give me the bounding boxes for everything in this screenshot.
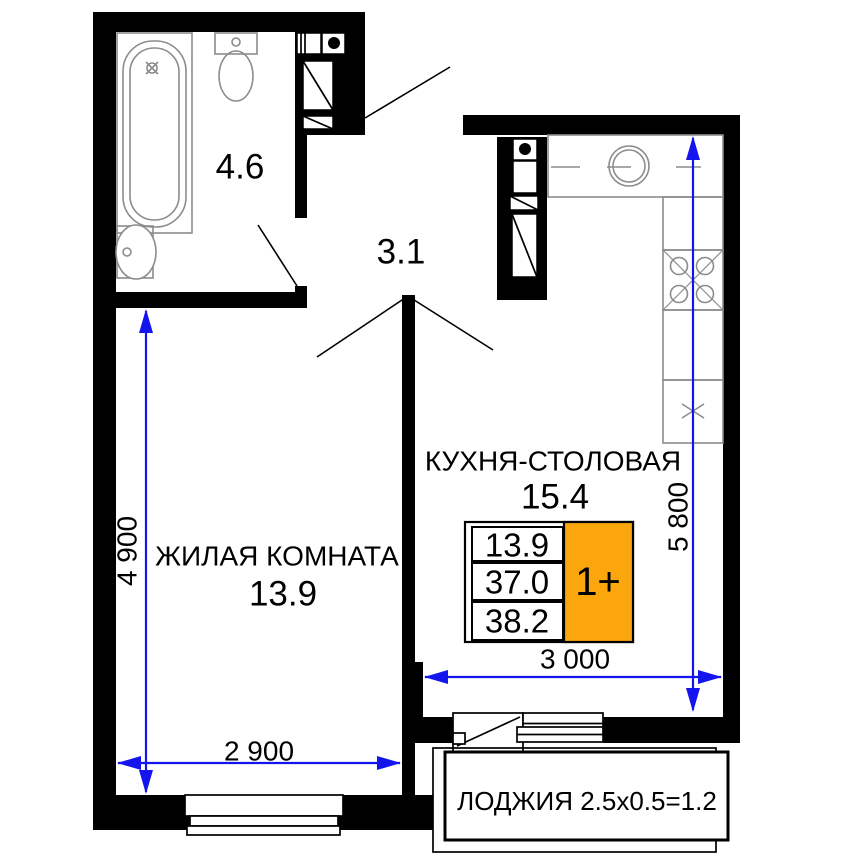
apartment-type-label: 1+ [575, 560, 621, 604]
vent-shaft-kitchen-icon [510, 139, 538, 277]
arrowhead-down-icon [139, 770, 153, 794]
arrowhead-up-icon [139, 309, 153, 333]
arrowhead-down-icon [686, 688, 700, 712]
arrowhead-left-icon [424, 670, 448, 684]
window-sill-outer [187, 826, 340, 835]
living-room-area-label: 13.9 [249, 575, 317, 614]
bathroom-door-swing-line [258, 225, 297, 286]
dimension-label-4900: 4 900 [112, 516, 143, 586]
apartment-info-table: 13.9 37.0 38.2 1+ [465, 522, 633, 642]
balcony-door-jamb [453, 733, 465, 744]
arrowhead-right-icon [377, 756, 401, 770]
toilet-icon [215, 33, 257, 101]
wall-bathroom-right [295, 135, 307, 218]
kitchen-door-swing-line [411, 298, 493, 350]
vent-duct-icon [328, 37, 340, 49]
bathroom-sink-icon [116, 225, 156, 279]
living-room-name-label: ЖИЛАЯ КОМНАТА [155, 541, 399, 572]
kitchen-area-label: 15.4 [521, 478, 589, 517]
info-apartment-area-value: 37.0 [485, 564, 549, 601]
loggia: ЛОДЖИЯ 2.5x0.5=1.2 [433, 748, 728, 852]
kitchen-name-label: КУХНЯ-СТОЛОВАЯ [425, 446, 681, 477]
info-living-area-value: 13.9 [485, 527, 549, 564]
door-swings [258, 67, 493, 357]
bathroom-area-label: 4.6 [216, 148, 265, 187]
kitchen-sink-icon [609, 146, 649, 186]
entrance-door-swing-line [365, 67, 450, 118]
wall-left-outer [93, 12, 116, 830]
balcony-door-window [453, 713, 603, 753]
living-room-window [185, 795, 343, 835]
vent-duct-icon [519, 143, 531, 155]
arrowhead-right-icon [698, 670, 722, 684]
dimension-label-2900: 2 900 [224, 736, 294, 767]
dimension-label-3000: 3 000 [540, 644, 610, 675]
wall-kitchen-top [463, 115, 740, 135]
wall-right-outer [723, 115, 740, 743]
arrowhead-up-icon [686, 136, 700, 160]
floor-plan-canvas: ЛОДЖИЯ 2.5x0.5=1.2 4 900 2 900 5 800 3 0… [0, 0, 847, 866]
wall-kitchen-bottom-left [415, 717, 453, 743]
wall-divider-step [415, 662, 423, 717]
arrowhead-left-icon [117, 756, 141, 770]
loggia-label: ЛОДЖИЯ 2.5x0.5=1.2 [457, 786, 717, 816]
floor-plan: ЛОДЖИЯ 2.5x0.5=1.2 4 900 2 900 5 800 3 0… [0, 0, 847, 866]
info-total-area-value: 38.2 [485, 603, 549, 640]
living-door-swing-line [317, 298, 405, 357]
wall-kitchen-bottom-right [603, 717, 740, 743]
bathtub-icon [117, 33, 192, 233]
hallway-area-label: 3.1 [377, 233, 426, 272]
window-frame [185, 795, 343, 816]
dimension-label-5800: 5 800 [663, 482, 694, 552]
wall-top-bathroom [93, 12, 365, 32]
counter-top-strip [548, 135, 723, 197]
wall-bathroom-bottom [116, 292, 302, 308]
window-sill [190, 816, 338, 826]
wall-living-kitchen-divider [402, 295, 415, 795]
vent-cell [513, 161, 537, 193]
kitchen-counter [548, 135, 723, 380]
